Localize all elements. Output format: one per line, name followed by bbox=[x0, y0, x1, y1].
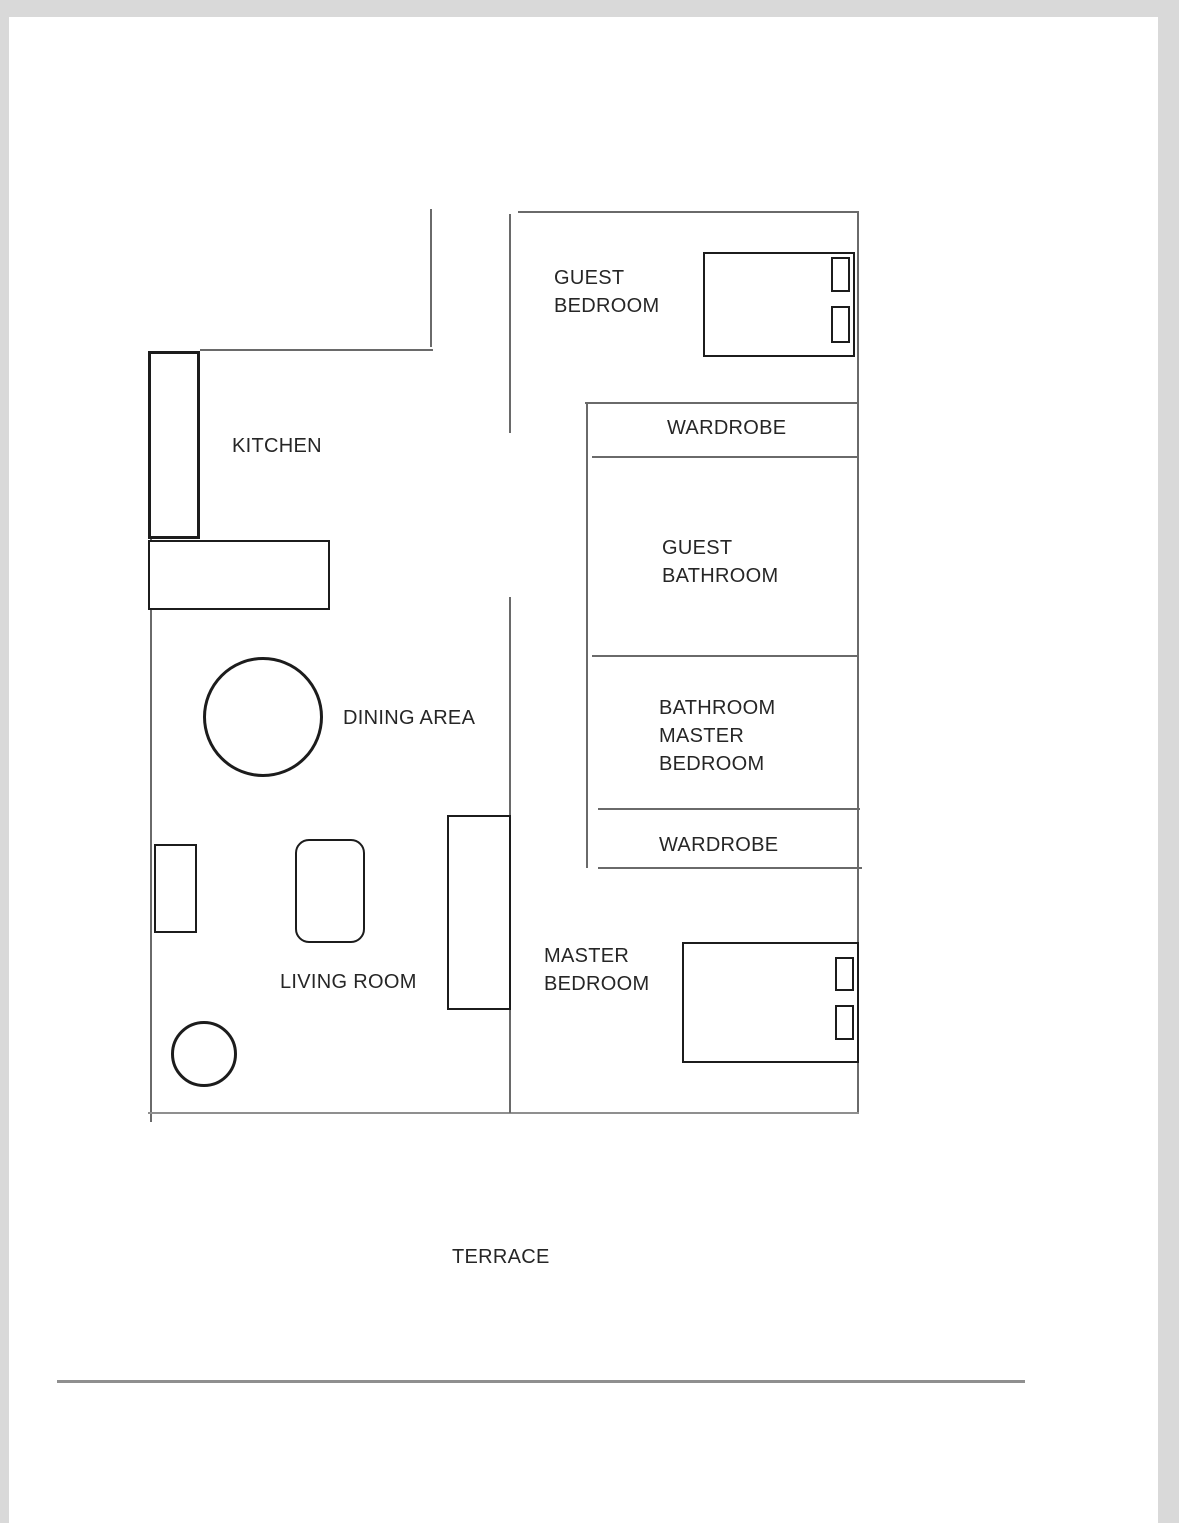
label-master-bedroom-line1: MASTER bbox=[544, 942, 649, 970]
label-guest-bedroom: GUEST BEDROOM bbox=[554, 264, 659, 320]
label-guest-bedroom-line1: GUEST bbox=[554, 264, 659, 292]
label-master-bathroom-line3: BEDROOM bbox=[659, 750, 775, 778]
kitchen-counter-horizontal bbox=[148, 540, 330, 610]
dining-table bbox=[203, 657, 323, 777]
label-guest-bathroom-line2: BATHROOM bbox=[662, 562, 778, 590]
label-master-bathroom-line1: BATHROOM bbox=[659, 694, 775, 722]
label-guest-bedroom-line2: BEDROOM bbox=[554, 292, 659, 320]
label-living-room: LIVING ROOM bbox=[280, 968, 417, 996]
wall-master-bathroom-bottom bbox=[598, 808, 860, 810]
label-terrace: TERRACE bbox=[452, 1243, 550, 1271]
label-living-room-line1: LIVING ROOM bbox=[280, 968, 417, 996]
guest-bed-pillow-bottom bbox=[831, 306, 850, 343]
label-terrace-line1: TERRACE bbox=[452, 1243, 550, 1271]
wall-guest-bedroom-left bbox=[509, 214, 511, 433]
label-master-bathroom-line2: MASTER bbox=[659, 722, 775, 750]
living-side-table bbox=[154, 844, 197, 933]
master-bed-pillow-top bbox=[835, 957, 854, 991]
guest-bed-pillow-top bbox=[831, 257, 850, 292]
living-lamp bbox=[171, 1021, 237, 1087]
label-dining-area-line1: DINING AREA bbox=[343, 704, 475, 732]
wall-guest-bedroom-top bbox=[518, 211, 858, 213]
master-bed bbox=[682, 942, 859, 1063]
label-wardrobe-master-line1: WARDROBE bbox=[659, 831, 778, 859]
label-master-bedroom: MASTER BEDROOM bbox=[544, 942, 649, 998]
label-kitchen-line1: KITCHEN bbox=[232, 432, 322, 460]
label-master-bedroom-line2: BEDROOM bbox=[544, 970, 649, 998]
label-dining-area: DINING AREA bbox=[343, 704, 475, 732]
wall-bathroom-block-left bbox=[586, 402, 588, 868]
wall-entry bbox=[430, 209, 432, 347]
label-master-bathroom: BATHROOM MASTER BEDROOM bbox=[659, 694, 775, 778]
paper-sheet bbox=[9, 17, 1158, 1523]
label-wardrobe-guest: WARDROBE bbox=[667, 414, 786, 442]
wall-guest-bathroom-bottom bbox=[592, 655, 858, 657]
wall-wardrobe-guest-bottom bbox=[592, 456, 858, 458]
wall-bottom bbox=[148, 1112, 859, 1114]
terrace-edge-line bbox=[57, 1380, 1025, 1383]
label-guest-bathroom: GUEST BATHROOM bbox=[662, 534, 778, 590]
label-wardrobe-master: WARDROBE bbox=[659, 831, 778, 859]
wall-kitchen-top bbox=[200, 349, 433, 351]
label-wardrobe-guest-line1: WARDROBE bbox=[667, 414, 786, 442]
label-guest-bathroom-line1: GUEST bbox=[662, 534, 778, 562]
wall-wardrobe-guest-top bbox=[585, 402, 858, 404]
living-armchair bbox=[295, 839, 365, 943]
master-bed-pillow-bottom bbox=[835, 1005, 854, 1040]
label-kitchen: KITCHEN bbox=[232, 432, 322, 460]
kitchen-counter-vertical bbox=[148, 351, 200, 539]
living-sofa bbox=[447, 815, 511, 1010]
wall-wardrobe-master-bottom bbox=[598, 867, 862, 869]
